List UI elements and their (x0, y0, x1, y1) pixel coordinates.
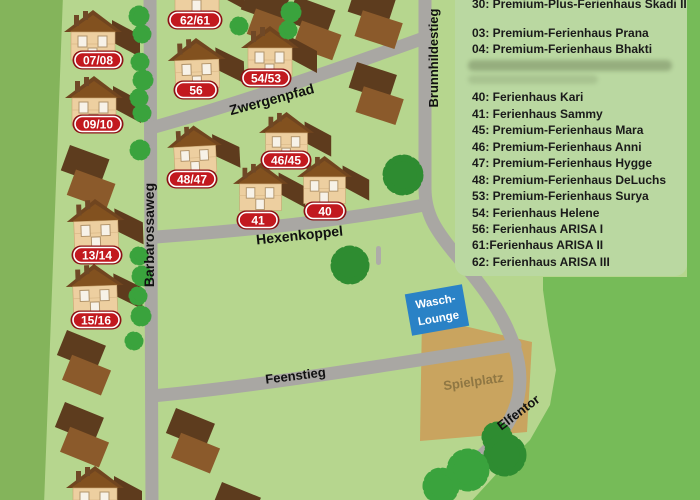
legend-faded-line (468, 75, 598, 84)
svg-text:54/53: 54/53 (251, 72, 281, 86)
badge-46-45: 46/45 (261, 151, 312, 170)
tree-icon (135, 72, 151, 88)
tree-icon (135, 106, 149, 120)
legend-item: 03: Premium-Ferienhaus Prana (472, 26, 649, 40)
legend-panel: 30: Premium-Plus-Ferienhaus Skadi II 03:… (455, 0, 687, 276)
badge-13-14: 13/14 (72, 246, 123, 265)
legend-item: 62: Ferienhaus ARISA III (472, 255, 610, 269)
tree-icon (283, 4, 299, 20)
legend-item: 61:Ferienhaus ARISA II (472, 238, 603, 252)
badge-09-10: 09/10 (73, 115, 124, 134)
legend-item: 04: Premium-Ferienhaus Bhakti (472, 42, 652, 56)
svg-text:07/08: 07/08 (83, 54, 113, 68)
legend-item: 40: Ferienhaus Kari (472, 90, 583, 104)
legend-item: 45: Premium-Ferienhaus Mara (472, 123, 644, 137)
svg-text:15/16: 15/16 (81, 314, 111, 328)
svg-text:56: 56 (189, 84, 203, 98)
legend-item: 53: Premium-Ferienhaus Surya (472, 189, 649, 203)
tree-icon (135, 27, 149, 41)
tree-icon (386, 158, 420, 192)
badge-41: 41 (237, 211, 280, 230)
svg-text:13/14: 13/14 (82, 249, 112, 263)
tree-icon (132, 142, 148, 158)
legend-item: 30: Premium-Plus-Ferienhaus Skadi II (472, 0, 687, 11)
legend-item: 56: Ferienhaus ARISA I (472, 222, 603, 236)
svg-text:48/47: 48/47 (177, 173, 207, 187)
badge-40: 40 (304, 202, 347, 221)
tree-icon (334, 249, 366, 281)
svg-text:41: 41 (251, 214, 265, 228)
legend-item: 48: Premium-Ferienhaus DeLuchs (472, 173, 666, 187)
tree-icon (131, 8, 147, 24)
tree-icon (133, 308, 149, 324)
legend-item: 54: Ferienhaus Helene (472, 206, 600, 220)
badge-54-53: 54/53 (241, 69, 292, 88)
legend-item: 41: Ferienhaus Sammy (472, 107, 603, 121)
street-label-brunnhildestieg: Brunnhildestieg (426, 8, 441, 107)
tree-icon (127, 334, 141, 348)
legend-item: 47: Premium-Ferienhaus Hygge (472, 156, 652, 170)
legend-item: 46: Premium-Ferienhaus Anni (472, 140, 642, 154)
svg-text:46/45: 46/45 (271, 154, 301, 168)
badge-48-47: 48/47 (167, 170, 218, 189)
tree-icon (487, 437, 523, 473)
street-label-barbarossaweg: Barbarossaweg (141, 183, 157, 287)
tree-icon (132, 91, 146, 105)
badge-15-16: 15/16 (71, 311, 122, 330)
svg-text:62/61: 62/61 (180, 14, 210, 28)
tree-icon (426, 471, 456, 500)
tree-icon (133, 55, 147, 69)
legend-faded-line (468, 60, 672, 71)
badge-07-08: 07/08 (73, 51, 124, 70)
svg-text:09/10: 09/10 (83, 118, 113, 132)
svg-text:40: 40 (318, 205, 332, 219)
tree-icon (281, 23, 295, 37)
tree-icon (232, 19, 246, 33)
tree-icon (131, 289, 145, 303)
site-map: Zwergenpfad Brunnhildestieg Hexenkoppel … (0, 0, 700, 500)
path-marker (376, 246, 381, 265)
badge-62-61: 62/61 (168, 11, 223, 30)
map-canvas: Zwergenpfad Brunnhildestieg Hexenkoppel … (0, 0, 700, 500)
badge-56: 56 (174, 81, 219, 100)
